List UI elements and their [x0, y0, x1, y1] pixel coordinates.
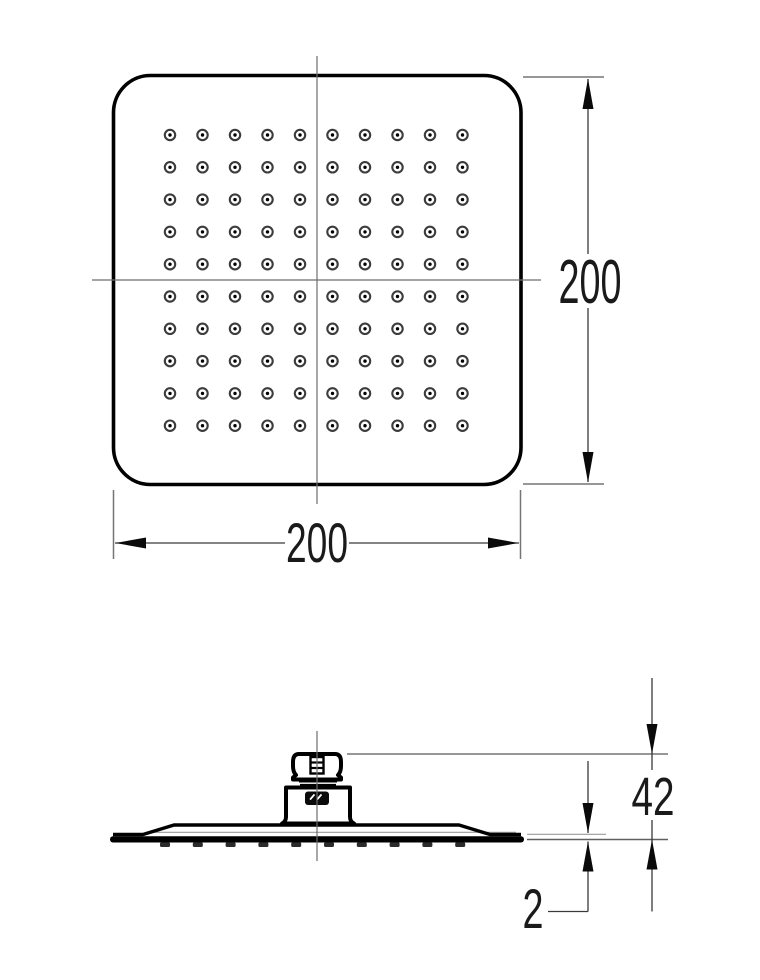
nozzle-dot-icon [233, 392, 236, 395]
arrow-up-icon [583, 842, 594, 872]
nozzle-dot-icon [233, 133, 236, 136]
outlet-strip [160, 842, 465, 847]
nozzle-dot-icon [266, 359, 269, 362]
nozzle-dot-icon [461, 295, 464, 298]
nozzle-dot-icon [396, 359, 399, 362]
nozzle-dot-icon [233, 263, 236, 266]
outlet-nub-icon [422, 842, 432, 847]
outlet-nub-icon [160, 842, 170, 847]
arrow-up-icon [583, 79, 594, 110]
nozzle-dot-icon [363, 166, 366, 169]
nozzle-dot-icon [168, 359, 171, 362]
nozzle-dot-icon [461, 359, 464, 362]
nozzle-dot-icon [201, 392, 204, 395]
nozzle-dot-icon [331, 133, 334, 136]
nozzle-dot-icon [266, 198, 269, 201]
nozzle-dot-icon [363, 295, 366, 298]
nozzle-dot-icon [168, 133, 171, 136]
nozzle-dot-icon [233, 230, 236, 233]
nozzle-dot-icon [298, 166, 301, 169]
nozzle-dot-icon [428, 198, 431, 201]
nozzle-dot-icon [363, 263, 366, 266]
arrow-down-icon [583, 452, 594, 483]
nozzle-dot-icon [168, 327, 171, 330]
nozzle-dot-icon [331, 166, 334, 169]
nozzle-dot-icon [461, 263, 464, 266]
nozzle-dot-icon [201, 166, 204, 169]
top-view [92, 56, 541, 504]
nozzle-dot-icon [298, 424, 301, 427]
nozzle-dot-icon [266, 133, 269, 136]
side-view [110, 731, 524, 861]
outlet-nub-icon [258, 842, 268, 847]
dim-width-label: 200 [286, 511, 348, 574]
nozzle-dot-icon [331, 392, 334, 395]
nozzle-dot-icon [396, 133, 399, 136]
nozzle-dot-icon [428, 359, 431, 362]
nozzle-dot-icon [233, 359, 236, 362]
nozzle-dot-icon [168, 295, 171, 298]
nozzle-dot-icon [363, 392, 366, 395]
nozzle-dot-icon [461, 133, 464, 136]
arrow-left-icon [116, 538, 147, 549]
nozzle-dot-icon [363, 359, 366, 362]
dim-head-height-label: 42 [632, 767, 675, 827]
nozzle-dot-icon [233, 424, 236, 427]
nozzle-dot-icon [428, 133, 431, 136]
nozzle-dot-icon [331, 198, 334, 201]
nozzle-dot-icon [396, 166, 399, 169]
nozzle-dot-icon [168, 263, 171, 266]
nozzle-dot-icon [233, 166, 236, 169]
nozzle-dot-icon [461, 424, 464, 427]
outlet-nub-icon [324, 842, 334, 847]
nozzle-dot-icon [396, 327, 399, 330]
nozzle-dot-icon [363, 327, 366, 330]
nozzle-dot-icon [396, 198, 399, 201]
nozzle-dot-icon [201, 198, 204, 201]
nozzle-dot-icon [201, 359, 204, 362]
nozzle-dot-icon [396, 295, 399, 298]
nozzle-dot-icon [168, 392, 171, 395]
nozzle-dot-icon [428, 392, 431, 395]
nozzle-dot-icon [266, 327, 269, 330]
nozzle-dot-icon [461, 166, 464, 169]
nozzle-dot-icon [396, 263, 399, 266]
nozzle-dot-icon [331, 295, 334, 298]
outlet-nub-icon [291, 842, 301, 847]
outlet-nub-icon [390, 842, 400, 847]
arrow-up-icon [647, 840, 658, 870]
nozzle-dot-icon [298, 133, 301, 136]
technical-drawing: 200 200 [0, 0, 760, 980]
nozzle-dot-icon [428, 166, 431, 169]
nozzle-dot-icon [331, 327, 334, 330]
arrow-right-icon [488, 538, 519, 549]
nozzle-dot-icon [331, 424, 334, 427]
nozzle-dot-icon [266, 392, 269, 395]
dim-head-height: 42 [347, 678, 676, 912]
nozzle-dot-icon [201, 133, 204, 136]
nozzle-dot-icon [266, 263, 269, 266]
nozzle-dot-icon [461, 230, 464, 233]
nozzle-dot-icon [266, 295, 269, 298]
nozzle-dot-icon [396, 230, 399, 233]
nozzle-dot-icon [201, 327, 204, 330]
nozzle-dot-icon [298, 295, 301, 298]
outlet-nub-icon [455, 842, 465, 847]
nozzle-dot-icon [233, 295, 236, 298]
nozzle-dot-icon [396, 424, 399, 427]
nozzle-dot-icon [331, 359, 334, 362]
outlet-nub-icon [193, 842, 203, 847]
nozzle-dot-icon [298, 230, 301, 233]
nozzle-dot-icon [298, 392, 301, 395]
nozzle-dot-icon [298, 327, 301, 330]
arrow-down-icon [583, 803, 594, 833]
outlet-nub-icon [226, 842, 236, 847]
nozzle-dot-icon [201, 424, 204, 427]
nozzle-dot-icon [461, 198, 464, 201]
dim-plate-thickness: 2 [523, 761, 594, 940]
nozzle-dot-icon [168, 166, 171, 169]
nozzle-dot-icon [428, 263, 431, 266]
nozzle-dot-icon [233, 327, 236, 330]
nozzle-dot-icon [331, 263, 334, 266]
nozzle-dot-icon [363, 198, 366, 201]
nozzle-dot-icon [168, 198, 171, 201]
nozzle-dot-icon [201, 295, 204, 298]
nozzle-dot-icon [363, 230, 366, 233]
dim-plate-thickness-label: 2 [523, 877, 544, 940]
nozzle-dot-icon [428, 424, 431, 427]
nozzle-dot-icon [233, 198, 236, 201]
arrow-down-icon [647, 724, 658, 754]
nozzle-dot-icon [168, 424, 171, 427]
nozzle-dot-icon [461, 327, 464, 330]
nozzle-dot-icon [201, 230, 204, 233]
nozzle-dot-icon [428, 230, 431, 233]
nozzle-dot-icon [396, 392, 399, 395]
nozzle-dot-icon [428, 295, 431, 298]
nozzle-dot-icon [298, 263, 301, 266]
nozzle-dot-icon [428, 327, 431, 330]
nozzle-dot-icon [266, 230, 269, 233]
nozzle-dot-icon [266, 166, 269, 169]
outlet-nub-icon [357, 842, 367, 847]
nozzle-dot-icon [461, 392, 464, 395]
nozzle-dot-icon [298, 359, 301, 362]
nozzle-dot-icon [363, 133, 366, 136]
dim-height-label: 200 [559, 248, 622, 317]
nozzle-dot-icon [168, 230, 171, 233]
nozzle-dot-icon [201, 263, 204, 266]
nozzle-dot-icon [266, 424, 269, 427]
nozzle-dot-icon [298, 198, 301, 201]
nozzle-dot-icon [331, 230, 334, 233]
nozzle-dot-icon [363, 424, 366, 427]
